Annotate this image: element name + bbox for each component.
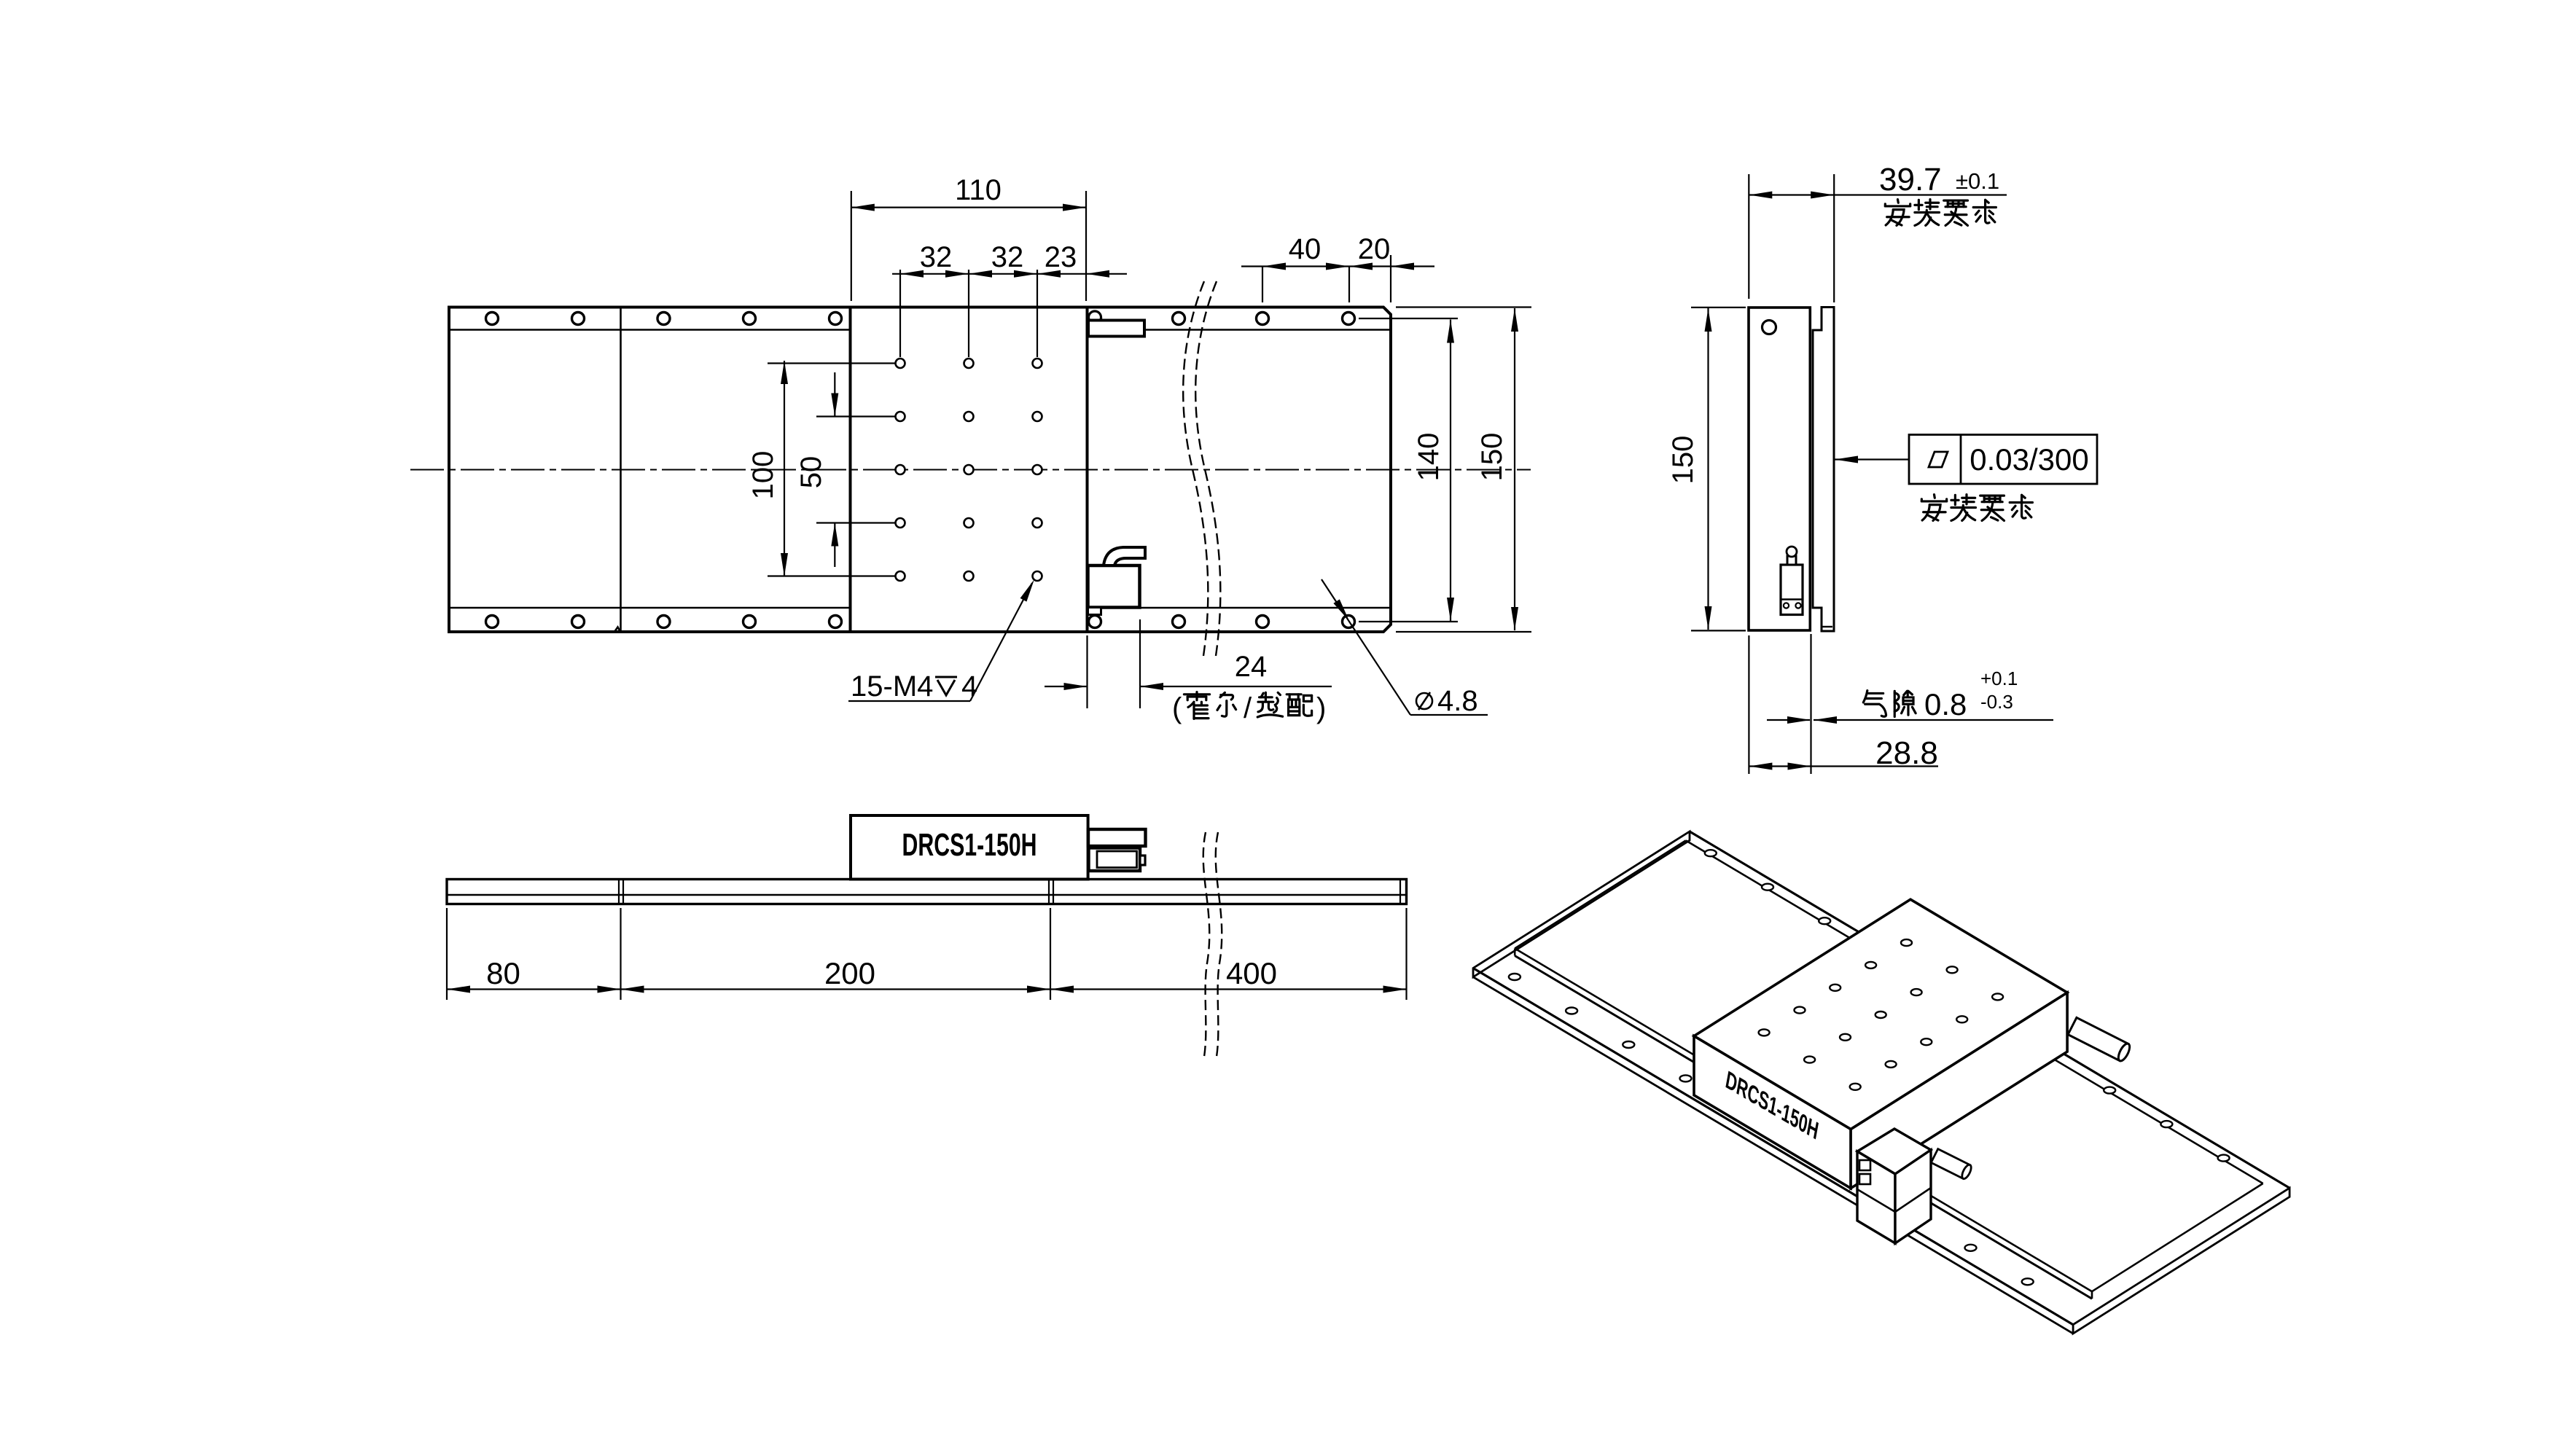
svg-text:-0.3: -0.3 [1980, 691, 2013, 713]
svg-text:0.8: 0.8 [1924, 687, 1967, 721]
svg-text:28.8: 28.8 [1875, 735, 1938, 771]
svg-text:200: 200 [824, 956, 875, 990]
svg-text:40: 40 [1289, 233, 1322, 265]
svg-text:20: 20 [1358, 233, 1391, 265]
svg-text:39.7: 39.7 [1879, 162, 1942, 197]
svg-text:/: / [1244, 692, 1252, 724]
svg-text:0.03/300: 0.03/300 [1970, 442, 2089, 477]
svg-text:±0.1: ±0.1 [1956, 168, 1999, 194]
svg-text:(: ( [1172, 692, 1182, 724]
svg-text:4.8: 4.8 [1437, 685, 1478, 717]
svg-text:150: 150 [1667, 436, 1699, 485]
svg-text:32: 32 [991, 241, 1024, 273]
svg-text:50: 50 [795, 456, 827, 489]
svg-text:23: 23 [1045, 241, 1077, 273]
svg-text:24: 24 [1235, 651, 1268, 683]
svg-text:100: 100 [747, 451, 779, 500]
svg-text:): ) [1316, 692, 1326, 724]
svg-text:4: 4 [961, 670, 977, 702]
svg-text:140: 140 [1413, 433, 1445, 482]
svg-text:+0.1: +0.1 [1980, 668, 2018, 689]
svg-text:110: 110 [955, 174, 1002, 206]
svg-text:80: 80 [486, 956, 520, 990]
svg-text:150: 150 [1476, 433, 1508, 482]
svg-text:32: 32 [920, 241, 953, 273]
svg-text:DRCS1-150H: DRCS1-150H [902, 827, 1037, 863]
svg-text:400: 400 [1226, 956, 1277, 990]
svg-text:15-M4: 15-M4 [851, 670, 933, 702]
